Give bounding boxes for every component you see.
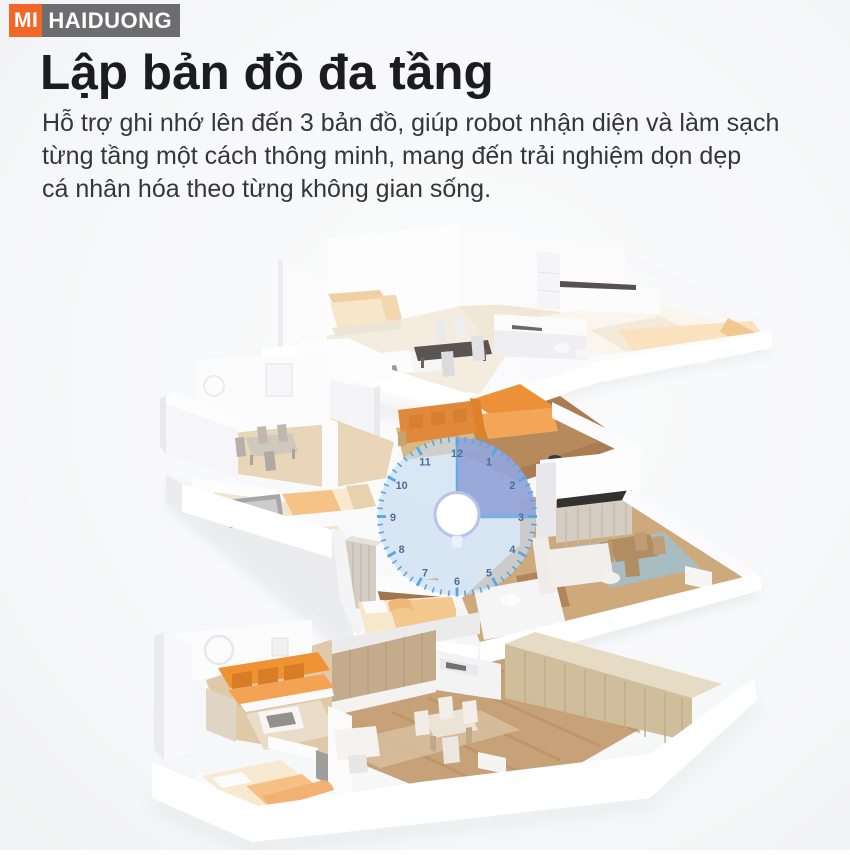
svg-text:6: 6: [454, 576, 460, 588]
svg-text:9: 9: [390, 512, 396, 524]
svg-text:10: 10: [396, 480, 408, 492]
svg-text:2: 2: [509, 480, 515, 492]
svg-text:11: 11: [419, 457, 430, 469]
svg-text:7: 7: [422, 567, 428, 579]
svg-text:5: 5: [486, 567, 492, 579]
svg-text:12: 12: [451, 448, 463, 460]
svg-text:3: 3: [518, 512, 524, 524]
svg-text:4: 4: [509, 544, 515, 556]
svg-text:8: 8: [399, 544, 405, 556]
svg-text:1: 1: [486, 457, 492, 469]
